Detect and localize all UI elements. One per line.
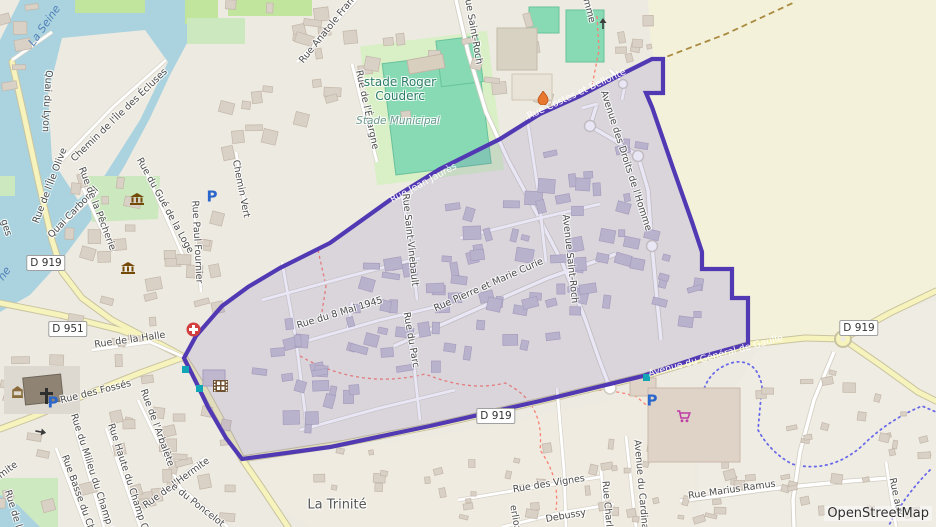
- attribution-link[interactable]: OpenStreetMap: [824, 506, 932, 521]
- riverside-green: [187, 18, 245, 44]
- small-green: [0, 176, 15, 196]
- island-green: [75, 0, 145, 13]
- map[interactable]: PPP La SeineQuai du LyonChemin de l'Île …: [0, 0, 936, 527]
- map-canvas: [0, 0, 936, 527]
